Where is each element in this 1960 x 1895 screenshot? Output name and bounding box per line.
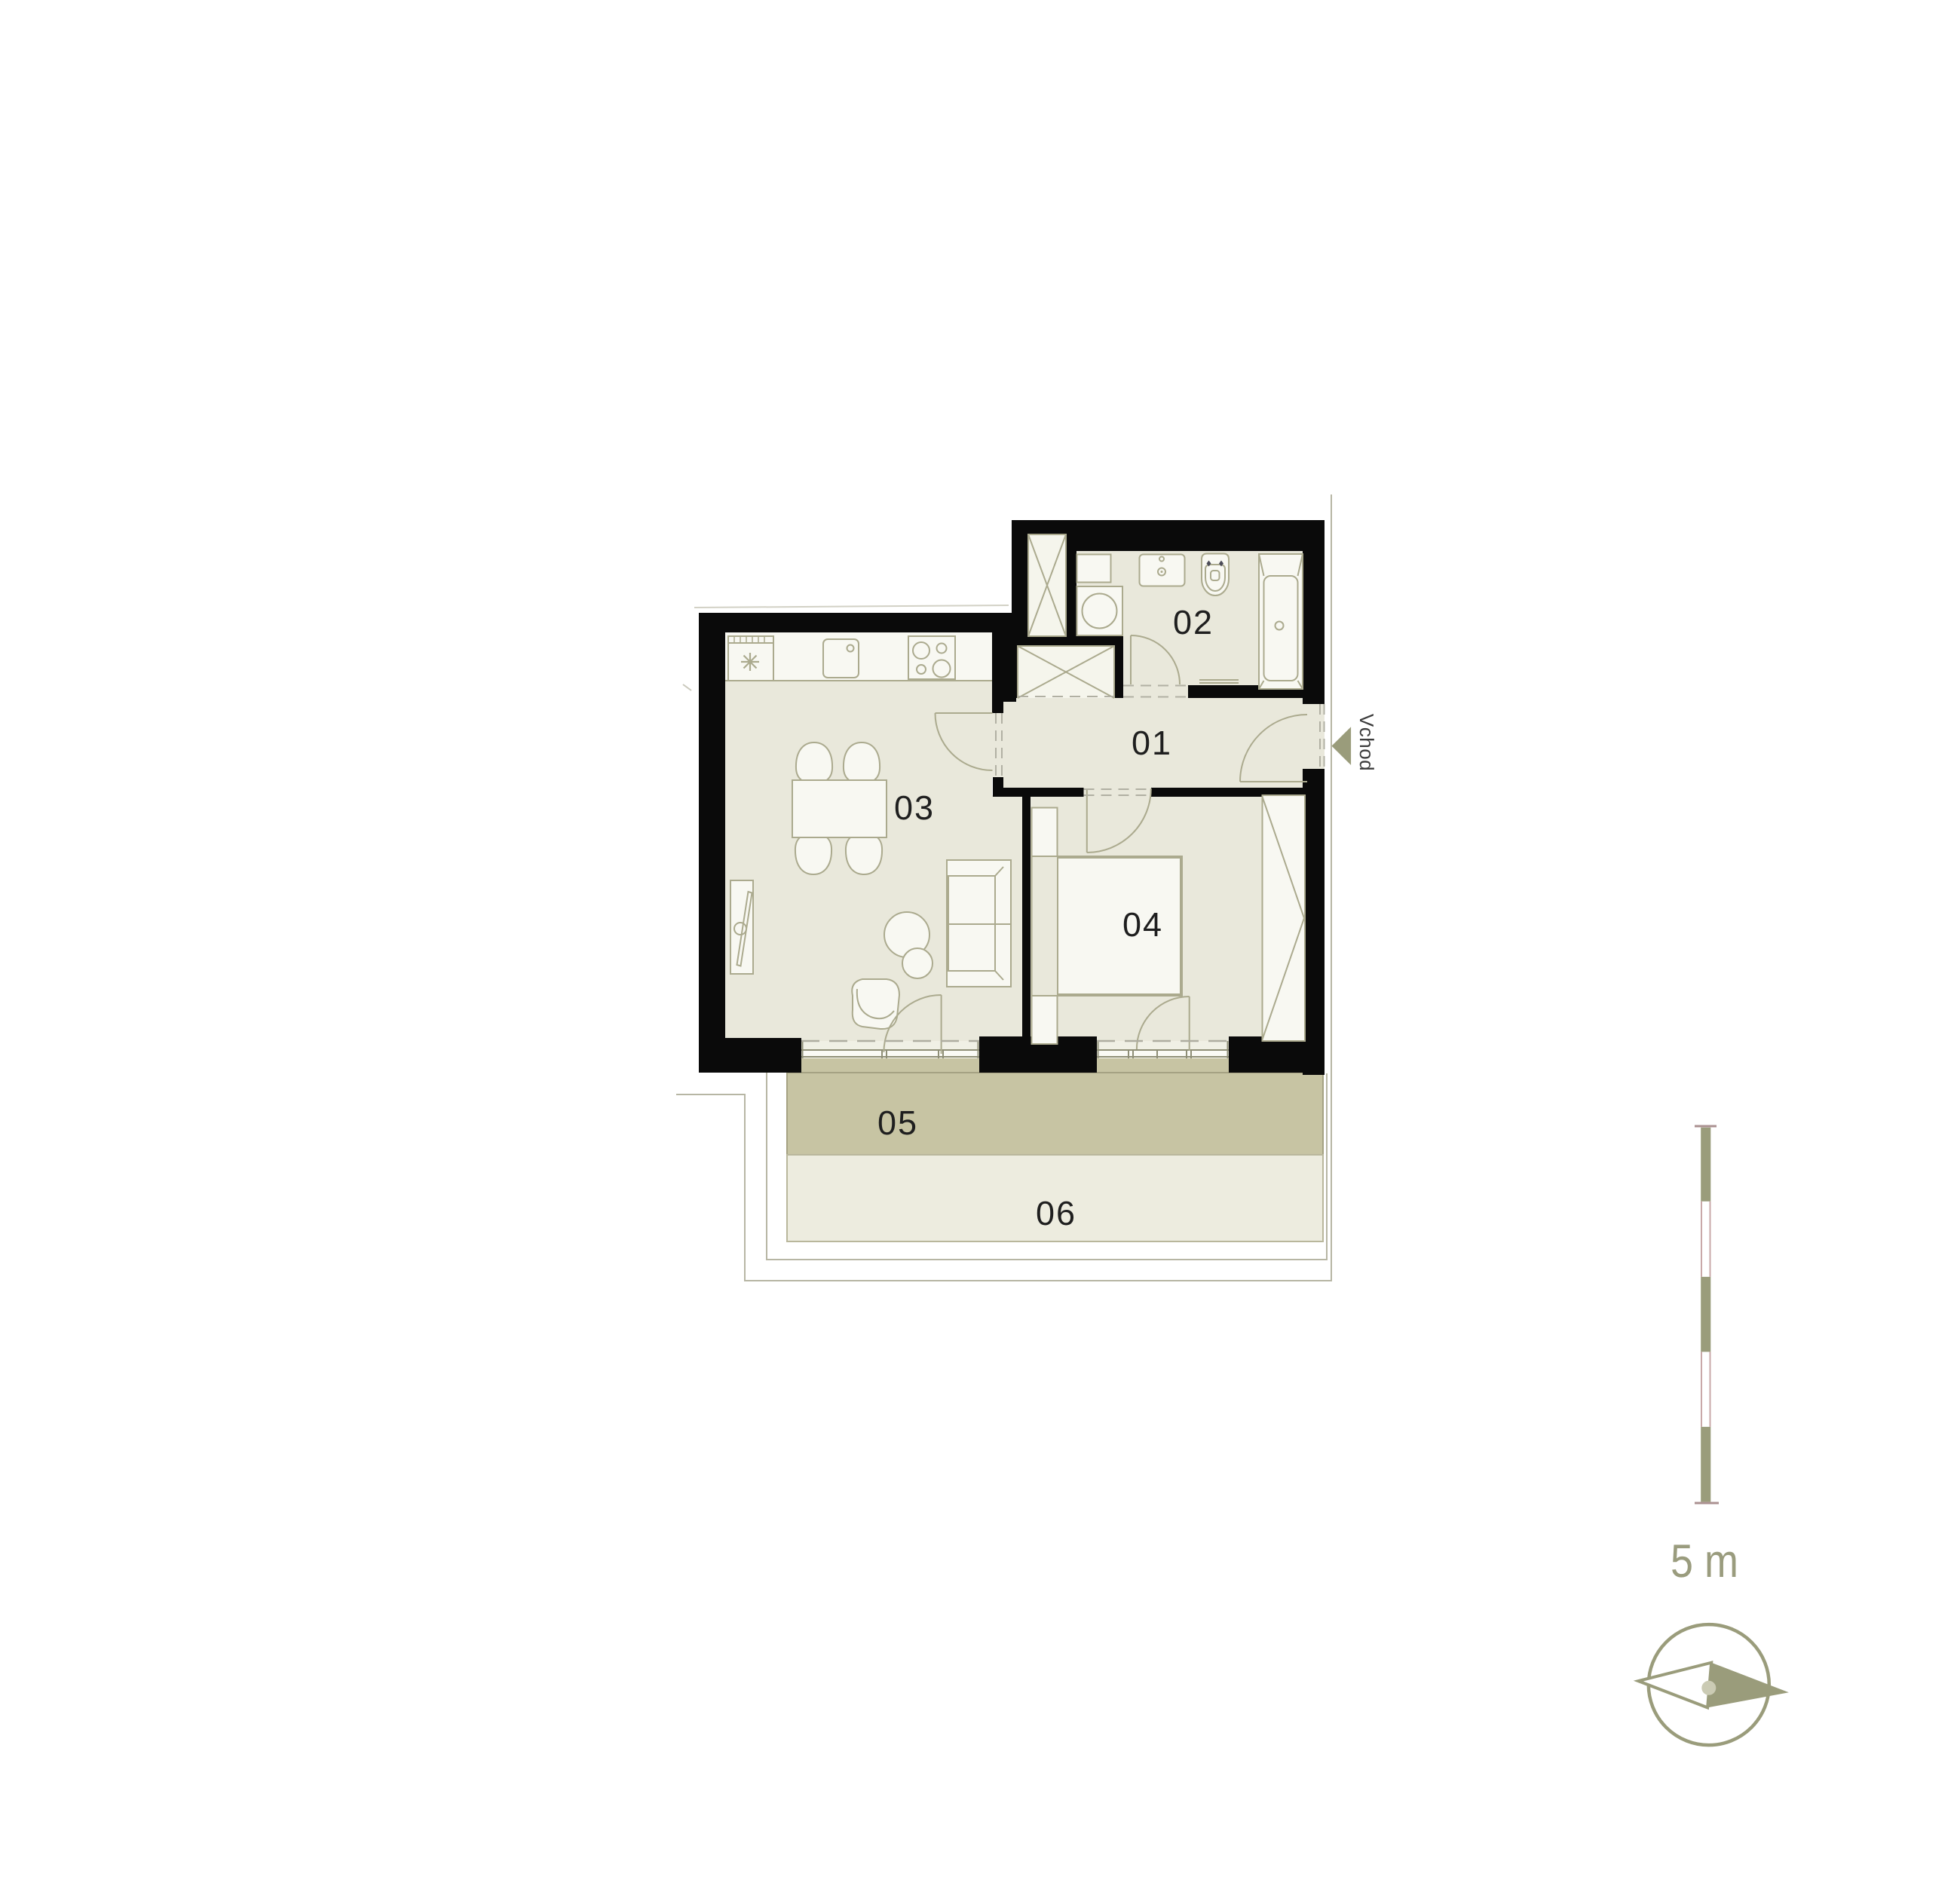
svg-text:Vchod: Vchod	[1355, 714, 1378, 771]
svg-text:04: 04	[1122, 905, 1163, 944]
svg-text:03: 03	[894, 788, 935, 827]
svg-text:01: 01	[1132, 724, 1172, 762]
svg-text:05: 05	[877, 1104, 918, 1142]
svg-text:06: 06	[1036, 1194, 1076, 1232]
svg-text:02: 02	[1173, 603, 1214, 641]
svg-text:5 m: 5 m	[1671, 1535, 1738, 1587]
